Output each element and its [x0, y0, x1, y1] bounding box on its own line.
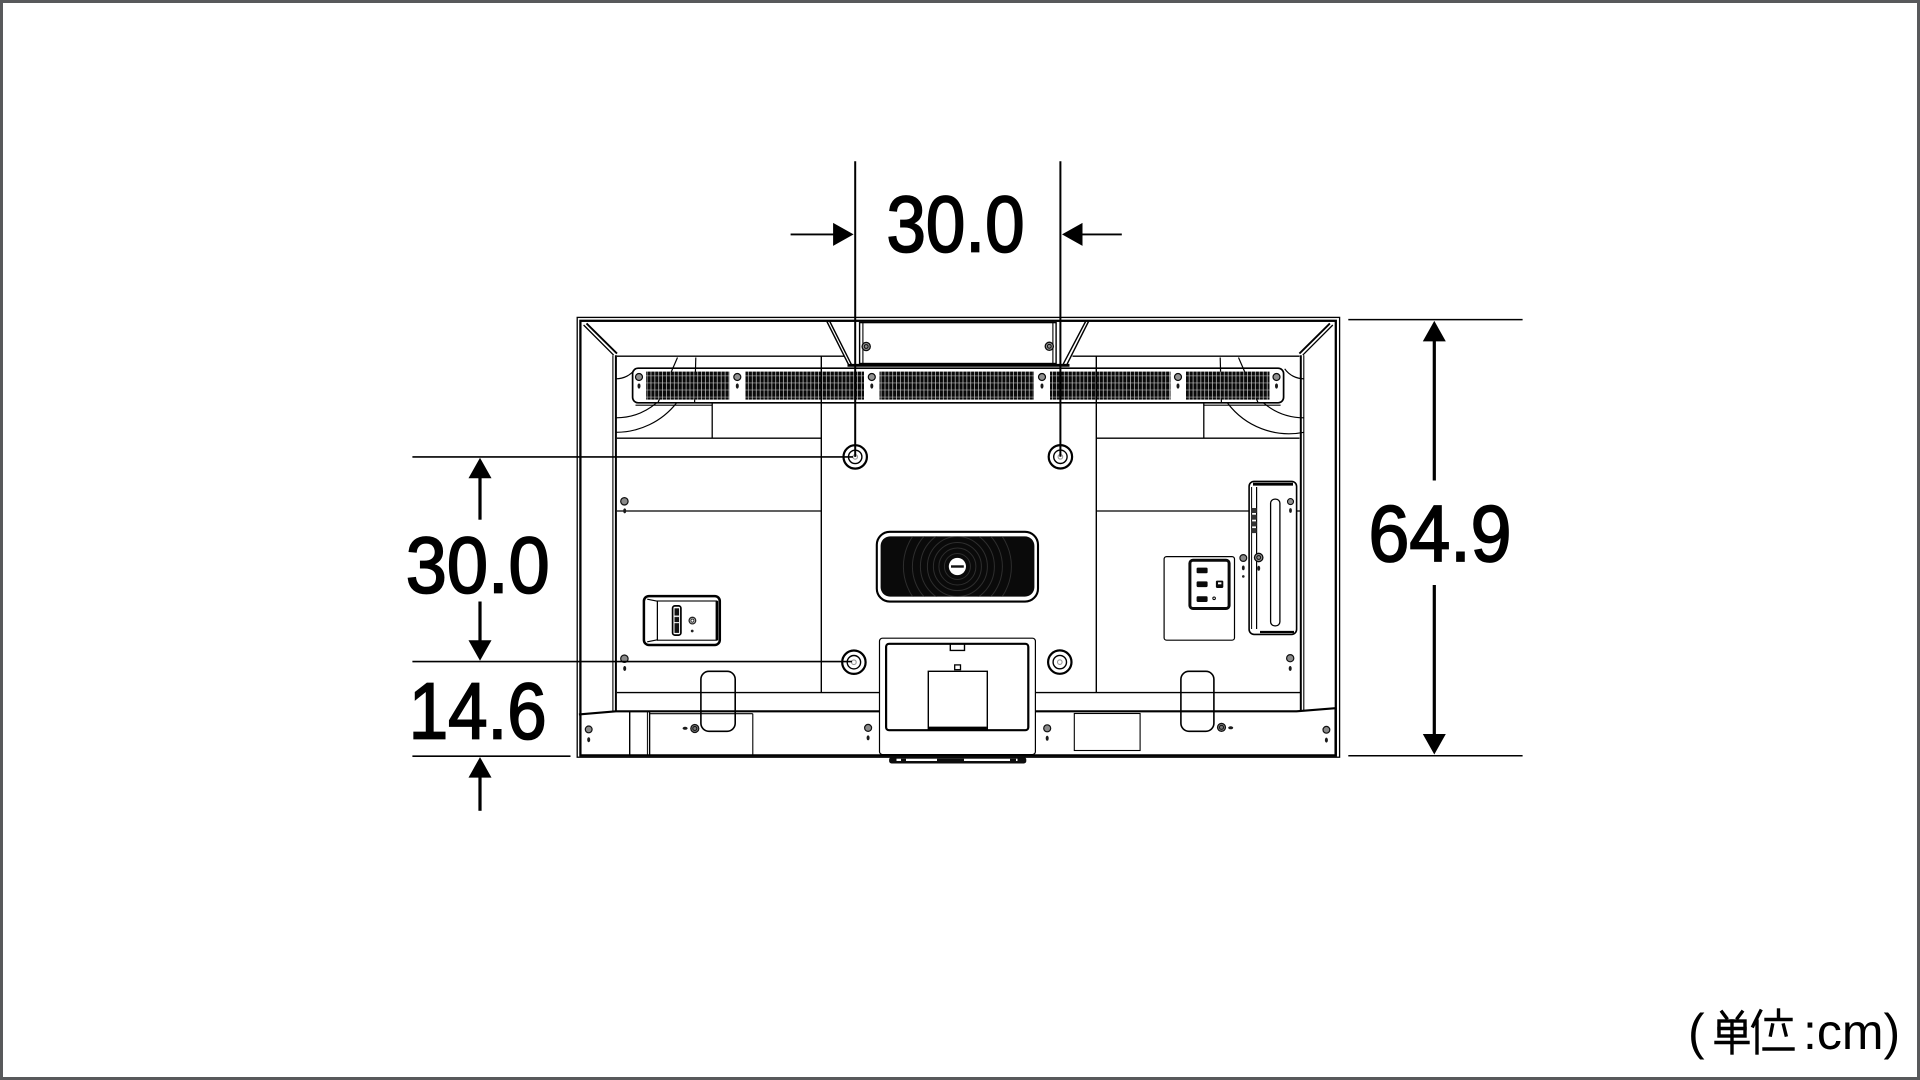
svg-text:14.6: 14.6	[409, 667, 547, 756]
svg-text:64.9: 64.9	[1369, 489, 1512, 578]
svg-text:(: (	[1688, 1004, 1705, 1060]
svg-text:30.0: 30.0	[887, 180, 1025, 269]
svg-text:30.0: 30.0	[406, 521, 550, 610]
svg-text::cm): :cm)	[1803, 1004, 1900, 1060]
